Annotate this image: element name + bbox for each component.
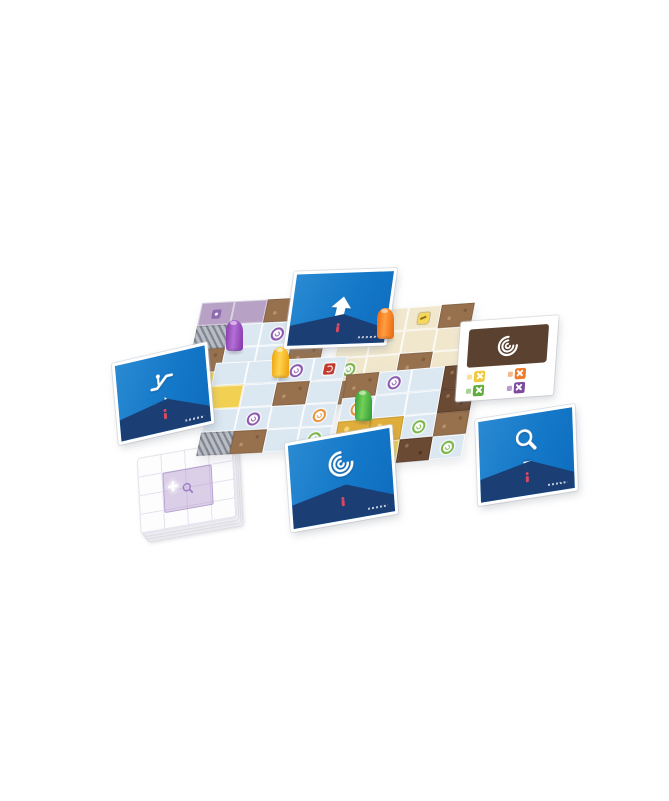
purple-chip-icon [211, 309, 222, 319]
escalator-icon [146, 364, 177, 393]
tile-cell [405, 305, 442, 331]
yellow-pawn [272, 347, 289, 378]
vortex-icon [325, 446, 357, 481]
red-figure-icon [340, 496, 347, 507]
purple-item-chip-icon [507, 385, 512, 390]
tile-cell [396, 437, 433, 463]
green-swirl-icon [439, 440, 454, 454]
red-item-icon [322, 363, 335, 375]
tile-cell [375, 369, 412, 395]
tile-cell [429, 434, 466, 460]
vortex-icon [495, 333, 521, 359]
tile-cell [408, 366, 445, 392]
orange-swirl-icon [311, 408, 327, 422]
tile-cell [400, 413, 437, 439]
red-figure-icon [524, 472, 530, 483]
yellow-item-icon [474, 370, 486, 382]
action-card-east [475, 404, 578, 506]
reference-item-legend [466, 366, 545, 395]
green-pawn [355, 390, 372, 421]
tile-cell [400, 328, 437, 354]
tile-cell [305, 379, 343, 404]
game-scene [0, 0, 669, 801]
reference-card [455, 315, 558, 401]
red-figure-icon [161, 408, 168, 419]
card-face [478, 407, 575, 502]
yellow-item-icon [417, 312, 430, 324]
purple-item [506, 380, 543, 394]
tile-cell [433, 410, 470, 436]
tile-cell [371, 393, 408, 419]
purple-swirl-icon [245, 412, 261, 426]
magnifier-icon [181, 480, 196, 497]
card-face [459, 319, 556, 399]
tile-cell [300, 403, 338, 428]
green-item [466, 383, 503, 397]
tile-cell [404, 390, 441, 416]
orange-item-icon [514, 367, 526, 379]
green-item-chip-icon [466, 388, 471, 393]
yellow-item [467, 369, 504, 383]
green-item-icon [473, 384, 485, 396]
action-card-west [112, 342, 215, 446]
card-face [115, 345, 211, 441]
reference-panel [466, 324, 549, 368]
sparkle-icon [168, 481, 178, 493]
orange-item [507, 366, 544, 380]
orange-pawn [377, 308, 394, 339]
yellow-item-chip-icon [467, 374, 472, 379]
magnifier-icon [512, 424, 541, 457]
board-game-product-photo [0, 0, 669, 801]
action-card-south [285, 424, 399, 532]
green-swirl-icon [411, 419, 426, 433]
purple-pawn [226, 320, 243, 351]
purple-swirl-icon [269, 327, 285, 341]
orange-item-chip-icon [508, 371, 513, 376]
tile-stack [137, 441, 237, 534]
purple-item-icon [513, 382, 525, 394]
card-face [288, 428, 395, 529]
purple-swirl-icon [386, 375, 401, 389]
tile-cell [310, 356, 348, 381]
